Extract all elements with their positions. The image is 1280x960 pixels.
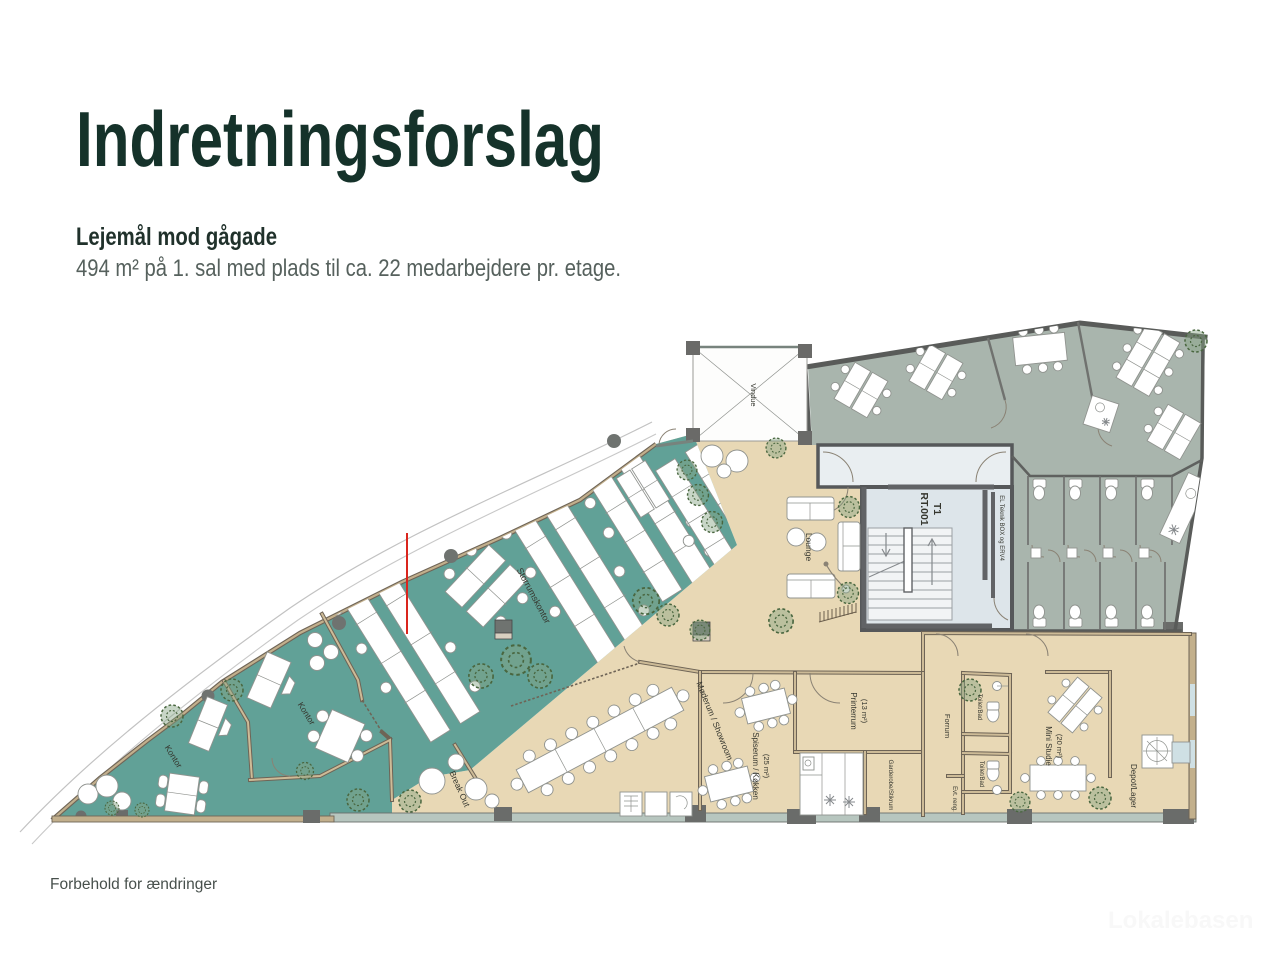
svg-text:Lokalebasen: Lokalebasen <box>1108 907 1253 934</box>
svg-text:T1: T1 <box>931 503 943 515</box>
svg-text:Depot/Lager: Depot/Lager <box>1129 764 1138 808</box>
svg-text:Toilet/Bad: Toilet/Bad <box>976 694 982 720</box>
svg-text:494 m² på 1. sal med plads til: 494 m² på 1. sal med plads til ca. 22 me… <box>76 255 621 282</box>
svg-text:Lejemål mod gågade: Lejemål mod gågade <box>76 223 277 251</box>
svg-text:Evt. reng.: Evt. reng. <box>951 786 957 812</box>
svg-text:Garderobe/Stikrum: Garderobe/Stikrum <box>887 760 893 811</box>
svg-text:Vindue: Vindue <box>749 383 758 406</box>
svg-text:Forbehold for ændringer: Forbehold for ændringer <box>50 876 217 893</box>
svg-text:Printerrum: Printerrum <box>849 692 858 730</box>
svg-text:Indretningsforslag: Indretningsforslag <box>76 95 604 183</box>
svg-text:Forrum: Forrum <box>943 714 952 738</box>
svg-text:EL Teknik BOX og ERV4: EL Teknik BOX og ERV4 <box>998 495 1004 561</box>
svg-text:Toilet/Bad: Toilet/Bad <box>978 761 984 787</box>
svg-text:RT.001: RT.001 <box>918 492 930 525</box>
svg-text:Spiserum / Køkken: Spiserum / Køkken <box>751 732 760 800</box>
svg-text:(20 m²): (20 m²) <box>1055 734 1064 759</box>
svg-text:Lounge: Lounge <box>804 533 814 562</box>
svg-text:(13 m²): (13 m²) <box>860 699 869 724</box>
svg-text:Mini Studie: Mini Studie <box>1044 726 1053 766</box>
svg-text:(25 m²): (25 m²) <box>762 754 771 779</box>
